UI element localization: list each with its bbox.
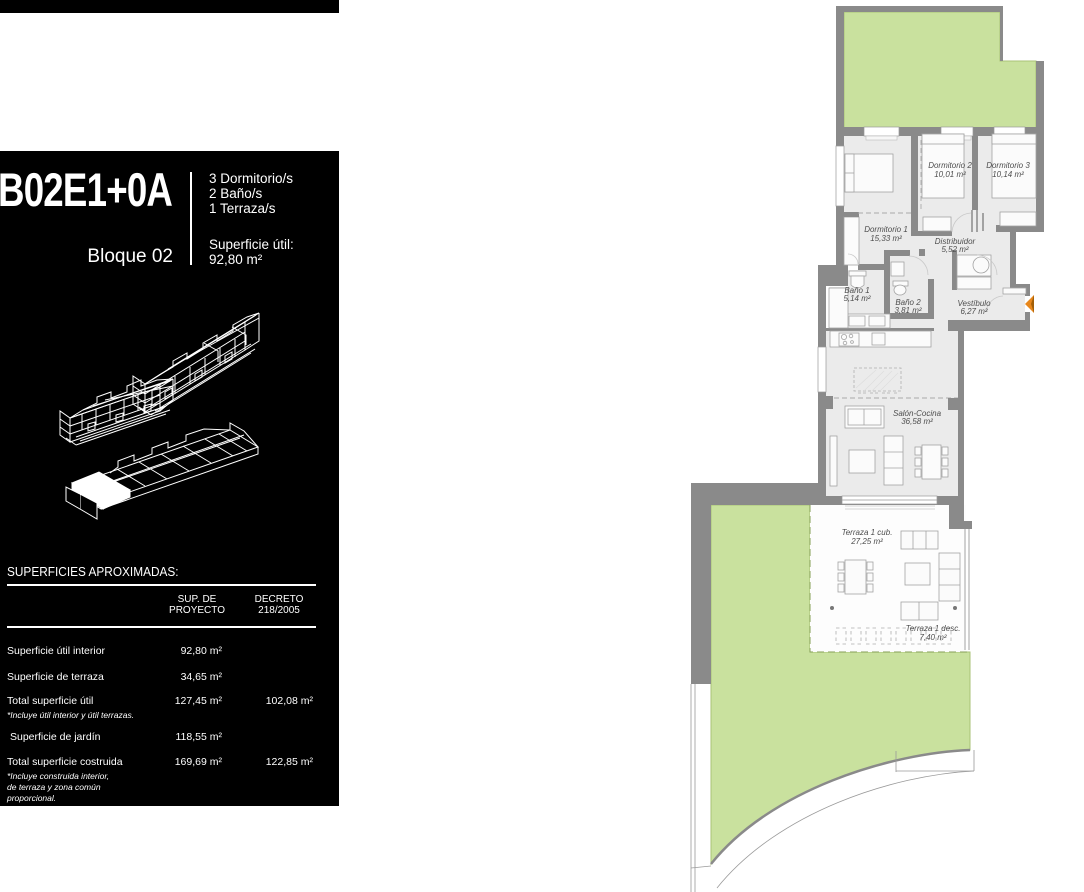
svg-text:7,40 m²: 7,40 m² <box>919 633 946 642</box>
svg-text:5,14 m²: 5,14 m² <box>843 294 870 303</box>
svg-text:Dormitorio 1: Dormitorio 1 <box>864 225 908 234</box>
svg-text:36,58 m²: 36,58 m² <box>901 417 933 426</box>
svg-text:6,27 m²: 6,27 m² <box>960 307 987 316</box>
svg-text:10,14 m²: 10,14 m² <box>992 170 1024 179</box>
svg-text:Dormitorio 3: Dormitorio 3 <box>986 161 1030 170</box>
svg-text:27,25 m²: 27,25 m² <box>850 537 883 546</box>
svg-text:5,52 m²: 5,52 m² <box>941 245 968 254</box>
svg-text:Terraza 1 cub.: Terraza 1 cub. <box>842 528 893 537</box>
svg-text:Terraza 1 desc.: Terraza 1 desc. <box>906 624 961 633</box>
svg-text:3,81 m²: 3,81 m² <box>894 306 921 315</box>
svg-text:10,01 m²: 10,01 m² <box>934 170 966 179</box>
svg-text:15,33 m²: 15,33 m² <box>870 234 902 243</box>
svg-text:Dormitorio 2: Dormitorio 2 <box>928 161 972 170</box>
